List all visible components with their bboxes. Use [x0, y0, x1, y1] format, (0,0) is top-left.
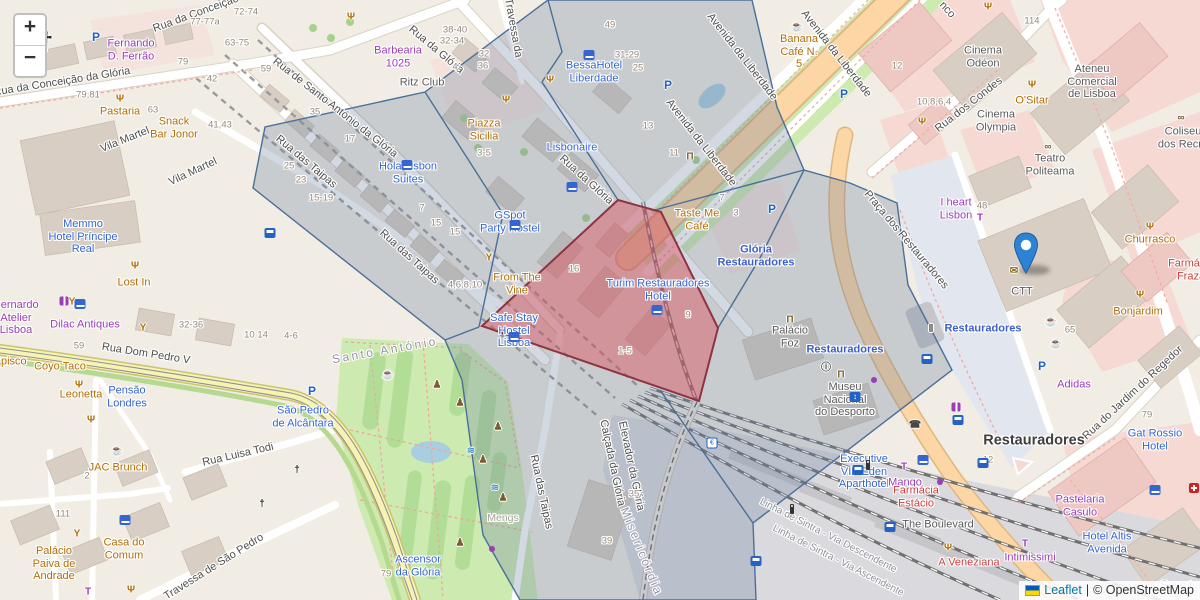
zoom-out-button[interactable]: −	[15, 46, 45, 76]
attribution-separator: |	[1086, 583, 1089, 597]
voronoi-overlay	[0, 0, 1200, 600]
map-marker-pin[interactable]	[1013, 232, 1039, 274]
zoom-in-button[interactable]: +	[15, 15, 45, 46]
ukraine-flag-icon	[1025, 585, 1040, 596]
leaflet-link[interactable]: Leaflet	[1044, 583, 1082, 597]
attribution-bar: Leaflet | © OpenStreetMap	[1019, 581, 1200, 600]
osm-attribution-link[interactable]: © OpenStreetMap	[1093, 583, 1194, 597]
zoom-control: + −	[13, 13, 47, 78]
leaflet-map[interactable]: Rua da Conceição da GlóriaRua da Conceiç…	[0, 0, 1200, 600]
